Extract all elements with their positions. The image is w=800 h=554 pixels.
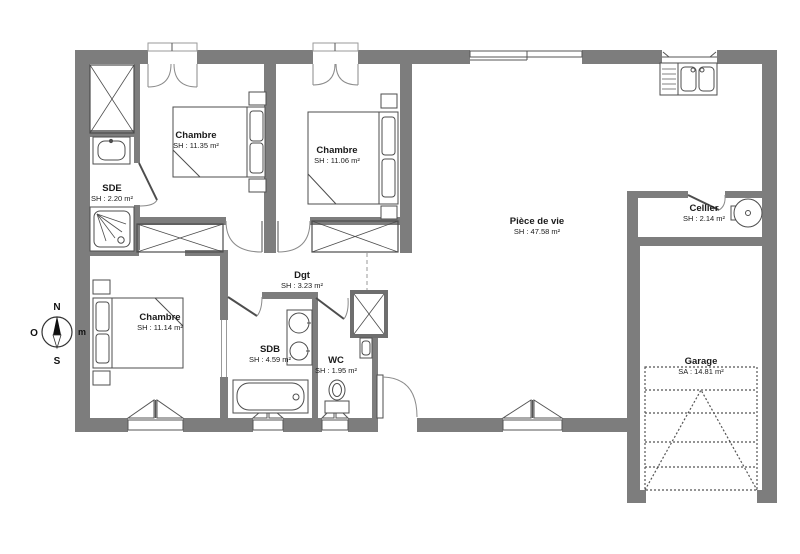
door-sdb xyxy=(228,297,262,316)
plan-linework: N O S m xyxy=(0,0,800,554)
french-door-chambre1 xyxy=(148,43,197,87)
kitchen-sink xyxy=(660,63,717,95)
hand-basin-wc xyxy=(360,338,372,358)
window-sejour-bottom xyxy=(503,400,562,430)
compass-west-label: O xyxy=(30,328,38,339)
compass: N O S m xyxy=(30,302,86,367)
door-entree xyxy=(377,375,417,418)
closet-chambre2 xyxy=(312,221,398,252)
door-chambre2 xyxy=(278,221,310,252)
window-chambre3 xyxy=(128,400,183,430)
bed-chambre1 xyxy=(173,92,266,192)
compass-south-label: S xyxy=(54,356,61,367)
door-chambre1 xyxy=(226,221,262,252)
door-cellier xyxy=(688,195,725,210)
compass-east-label: m xyxy=(78,327,86,337)
closet-chambre3 xyxy=(137,224,223,252)
garage-door xyxy=(645,367,757,490)
sink-sde xyxy=(93,137,130,164)
compass-north-label: N xyxy=(53,302,60,313)
bathtub xyxy=(233,380,308,413)
door-sde xyxy=(139,163,157,206)
french-door-chambre2 xyxy=(313,43,358,85)
window-cuisine xyxy=(662,52,717,57)
door-chambre3-sliding xyxy=(222,320,227,377)
vanity-sdb xyxy=(287,310,312,365)
window-sejour-top xyxy=(470,51,582,60)
water-heater xyxy=(731,199,762,227)
closet-dgt xyxy=(352,292,386,336)
closet-sde-top xyxy=(90,65,134,133)
floor-plan: N O S m Chambre SH : 11.35 m² Chambre SH… xyxy=(0,0,800,554)
bed-chambre2 xyxy=(308,94,398,219)
shower-sde xyxy=(90,207,134,251)
toilet xyxy=(325,380,349,413)
bed-chambre3 xyxy=(93,280,183,385)
door-wc xyxy=(316,298,348,319)
